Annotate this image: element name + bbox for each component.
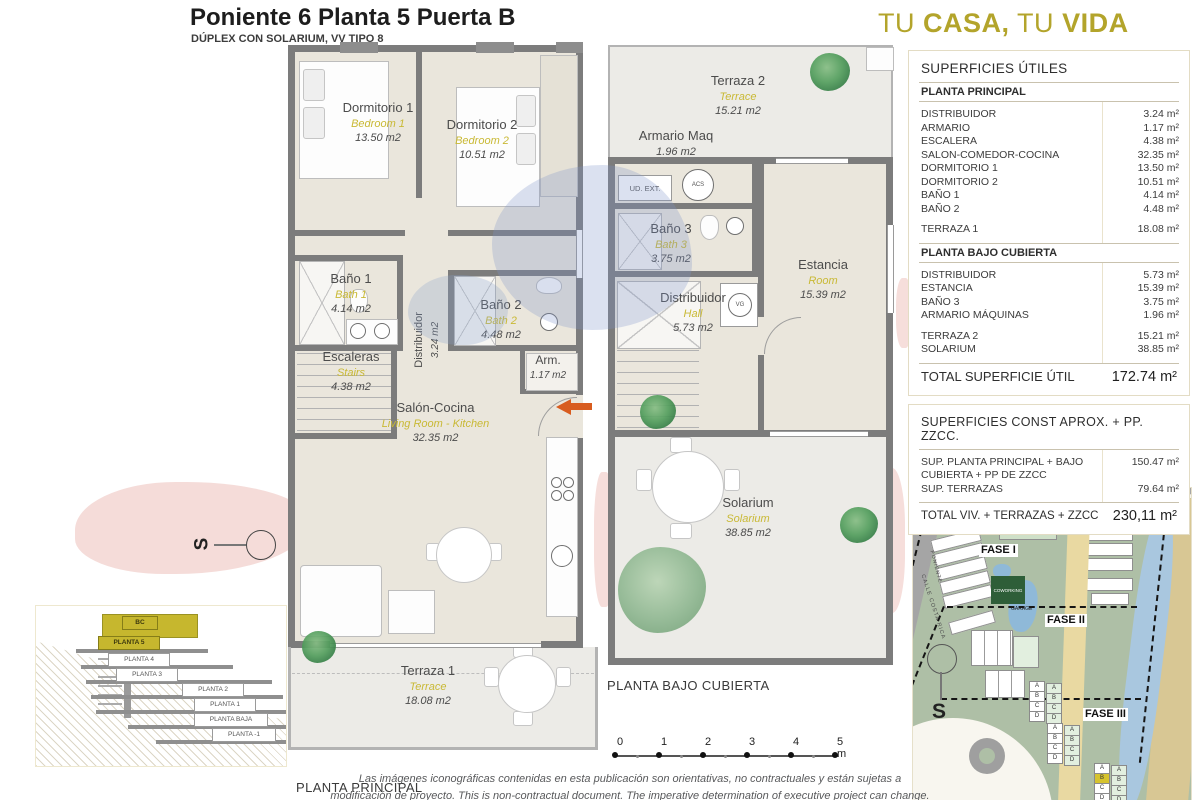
row-value: 32.35 m² xyxy=(1107,149,1179,163)
room-name-en: Bedroom 2 xyxy=(426,134,538,148)
closet xyxy=(540,55,578,197)
room-area: 4.14 m2 xyxy=(306,302,396,316)
unit-cell: D xyxy=(1111,795,1127,800)
wall-pier xyxy=(476,42,514,53)
map-building xyxy=(1085,578,1133,591)
fase1-label: FASE I xyxy=(979,544,1018,557)
row-value: 1.96 m² xyxy=(1107,309,1179,323)
table-row: BAÑO 33.75 m² xyxy=(921,296,1179,310)
row-label: DORMITORIO 1 xyxy=(921,162,1107,176)
room-area: 4.48 m2 xyxy=(456,328,546,342)
room-name: Arm. xyxy=(516,353,580,369)
unit-cell: D xyxy=(1029,711,1045,722)
row-value: 5.73 m² xyxy=(1107,269,1179,283)
room-label-bano3: Baño 3 Bath 3 3.75 m2 xyxy=(626,221,716,266)
utiles-sec1-rows: DISTRIBUIDOR3.24 m²ARMARIO1.17 m²ESCALER… xyxy=(919,102,1179,243)
scale-tick-dot xyxy=(700,752,706,758)
sofa xyxy=(300,565,382,637)
room-label-dormitorio2: Dormitorio 2 Bedroom 2 10.51 m2 xyxy=(426,117,538,162)
row-label: DORMITORIO 2 xyxy=(921,176,1107,190)
wall xyxy=(615,271,758,277)
row-label: SOLARIUM xyxy=(921,343,1107,357)
room-name-en: Terrace xyxy=(373,680,483,694)
row-value: 150.47 m² xyxy=(1107,456,1179,470)
room-area: 38.85 m2 xyxy=(688,526,808,540)
unit-grid: ABCD xyxy=(1094,764,1110,800)
room-name: Dormitorio 2 xyxy=(426,117,538,134)
utiles-sec2-header: PLANTA BAJO CUBIERTA xyxy=(919,243,1179,263)
compass-letter: S xyxy=(932,700,946,724)
row-label: BAÑO 3 xyxy=(921,296,1107,310)
sink xyxy=(726,217,744,235)
total-label: TOTAL VIV. + TERRAZAS + ZZCC xyxy=(921,510,1113,522)
row-value: 1.17 m² xyxy=(1107,122,1179,136)
floor-label-bc: BC xyxy=(122,616,158,630)
disclaimer-line-2: modificación de proyecto. This is non-co… xyxy=(300,788,960,800)
room-area: 32.35 m2 xyxy=(343,431,528,445)
row-value: 79.64 m² xyxy=(1107,483,1179,497)
room-name: Armario Maq xyxy=(616,128,736,145)
kitchen-sink xyxy=(551,545,573,567)
scale-minor-tick xyxy=(812,755,815,758)
scale-tick-label: 0 xyxy=(617,736,623,748)
unit-cell: D xyxy=(1047,753,1063,764)
room-label-salon: Salón-Cocina Living Room - Kitchen 32.35… xyxy=(343,400,528,445)
room-label-bano2: Baño 2 Bath 2 4.48 m2 xyxy=(456,297,546,342)
floor-label-planta5: PLANTA 5 xyxy=(98,636,160,650)
row-value: 4.48 m² xyxy=(1107,203,1179,217)
room-name: Distribuidor xyxy=(413,312,425,368)
sink xyxy=(374,323,390,339)
acs-unit: ACS xyxy=(682,169,714,201)
scale-tick-label: 5 m xyxy=(837,736,854,760)
row-value: 38.85 m² xyxy=(1107,343,1179,357)
terrace-wall xyxy=(608,45,893,47)
map-building-grid xyxy=(1013,636,1039,668)
room-label-arm: Arm. 1.17 m2 xyxy=(516,353,580,382)
table-row: SUP. PLANTA PRINCIPAL + BAJO CUBIERTA + … xyxy=(921,456,1179,483)
room-area: 15.39 m2 xyxy=(768,288,878,302)
table-row: TERRAZA 215.21 m² xyxy=(921,330,1179,344)
row-value: 18.08 m² xyxy=(1107,223,1179,237)
room-name: Distribuidor xyxy=(638,290,748,307)
map-building-grid xyxy=(971,630,1013,666)
room-name-en: Solarium xyxy=(688,512,808,526)
room-label-escaleras: Escaleras Stairs 4.38 m2 xyxy=(306,349,396,394)
room-label-terraza2: Terraza 2 Terrace 15.21 m2 xyxy=(673,73,803,118)
room-name-en: Room xyxy=(768,274,878,288)
terrace-wall xyxy=(288,747,598,750)
brand-slogan: TU CASA, TU VIDA xyxy=(878,8,1129,39)
unit-cell: D xyxy=(1094,793,1110,800)
room-area: 10.51 m2 xyxy=(426,148,538,162)
hob-burner xyxy=(551,490,562,501)
unit-grid: ABCD xyxy=(1047,724,1063,764)
chair xyxy=(636,469,652,491)
scale-tick-dot xyxy=(612,752,618,758)
room-area: 3.24 m2 xyxy=(429,275,442,405)
room-area: 4.38 m2 xyxy=(306,380,396,394)
utiles-sec1-header: PLANTA PRINCIPAL xyxy=(919,82,1179,102)
superficies-utiles-box: SUPERFICIES ÚTILES PLANTA PRINCIPAL DIST… xyxy=(908,50,1190,396)
total-value: 230,11 m² xyxy=(1113,508,1177,524)
table-row: DORMITORIO 113.50 m² xyxy=(921,162,1179,176)
room-name-en: Bedroom 1 xyxy=(318,117,438,131)
floorplan-bajo-cubierta: UD. EXT. ACS VG Terraza 2 Terrace 15.21 … xyxy=(608,45,893,667)
table-row: BAÑO 14.14 m² xyxy=(921,189,1179,203)
room-name: Baño 2 xyxy=(456,297,546,314)
brand-part-1: TU xyxy=(878,8,915,38)
wall xyxy=(541,641,583,648)
row-label: ESTANCIA xyxy=(921,282,1107,296)
room-label-estancia: Estancia Room 15.39 m2 xyxy=(768,257,878,302)
window xyxy=(776,158,848,164)
chair xyxy=(484,667,499,687)
kitchen-counter xyxy=(546,437,578,617)
scale-tick-label: 1 xyxy=(661,736,667,748)
table-row: SALON-COMEDOR-COCINA32.35 m² xyxy=(921,149,1179,163)
disclaimer-line-1: Las imágenes iconográficas contenidas en… xyxy=(300,771,960,788)
plan-bajo-caption: PLANTA BAJO CUBIERTA xyxy=(607,678,770,693)
wall xyxy=(615,203,755,209)
room-name: Solarium xyxy=(688,495,808,512)
terrace-table xyxy=(498,655,556,713)
row-label: SUP. TERRAZAS xyxy=(921,483,1107,497)
map-building-grid xyxy=(985,670,1025,698)
unit-grid: ABCD xyxy=(1064,726,1080,766)
room-name: Salón-Cocina xyxy=(343,400,528,417)
scale-tick-dot xyxy=(744,752,750,758)
scale-tick-dot xyxy=(832,752,838,758)
unit-grid: ABCD xyxy=(1111,766,1127,800)
room-name-en: Terrace xyxy=(673,90,803,104)
table-row: ESCALERA4.38 m² xyxy=(921,135,1179,149)
rooftop-box xyxy=(866,47,894,71)
wall xyxy=(295,230,405,236)
table-row: ESTANCIA15.39 m² xyxy=(921,282,1179,296)
map-building xyxy=(1085,558,1133,571)
floor-label-planta-menos1: PLANTA -1 xyxy=(212,728,276,742)
building-section-diagram: BC PLANTA 5 PLANTA 4 PLANTA 3 PLANTA 2 P… xyxy=(35,605,287,767)
utiles-sec2-rows: DISTRIBUIDOR5.73 m²ESTANCIA15.39 m²BAÑO … xyxy=(919,263,1179,363)
const-total-row: TOTAL VIV. + TERRAZAS + ZZCC 230,11 m² xyxy=(919,502,1179,526)
room-name-en: Hall xyxy=(638,307,748,321)
row-label: DISTRIBUIDOR xyxy=(921,269,1107,283)
floor-label-planta2: PLANTA 2 xyxy=(182,683,244,697)
room-label-solarium: Solarium Solarium 38.85 m2 xyxy=(688,495,808,540)
map-garage-label: GARAGE xyxy=(1011,606,1032,612)
surface-panel: SUPERFICIES ÚTILES PLANTA PRINCIPAL DIST… xyxy=(908,50,1190,543)
row-label: ARMARIO MÁQUINAS xyxy=(921,309,1107,323)
room-area: 5.73 m2 xyxy=(638,321,748,335)
unit-grid: ABCD xyxy=(1046,684,1062,724)
coffee-table xyxy=(388,590,435,634)
ud-ext-box: UD. EXT. xyxy=(618,175,672,201)
room-area: 15.21 m2 xyxy=(673,104,803,118)
table-row: SUP. TERRAZAS79.64 m² xyxy=(921,483,1179,497)
scale-bar: 012345 m xyxy=(614,732,854,766)
utiles-title: SUPERFICIES ÚTILES xyxy=(919,57,1179,82)
const-rows: SUP. PLANTA PRINCIPAL + BAJO CUBIERTA + … xyxy=(919,449,1179,503)
wall xyxy=(448,230,576,236)
hob-burner xyxy=(551,477,562,488)
room-name-en: Bath 1 xyxy=(306,288,396,302)
room-label-armario-maq: Armario Maq 1.96 m2 xyxy=(616,128,736,159)
table-row: DISTRIBUIDOR3.24 m² xyxy=(921,108,1179,122)
room-name-en: Bath 3 xyxy=(626,238,716,252)
wall-pier xyxy=(556,42,583,53)
entry-arrow-bar xyxy=(570,403,592,410)
row-value: 4.38 m² xyxy=(1107,135,1179,149)
row-value: 4.14 m² xyxy=(1107,189,1179,203)
compass-letter: S xyxy=(191,538,213,551)
row-value: 3.75 m² xyxy=(1107,296,1179,310)
compass-ring xyxy=(927,644,957,674)
row-label: BAÑO 1 xyxy=(921,189,1107,203)
total-label: TOTAL SUPERFICIE ÚTIL xyxy=(921,369,1112,384)
room-area: 1.17 m2 xyxy=(516,369,580,382)
bed-pillow xyxy=(303,69,325,101)
scale-minor-tick xyxy=(724,755,727,758)
row-value: 13.50 m² xyxy=(1107,162,1179,176)
scale-tick-label: 3 xyxy=(749,736,755,748)
wall xyxy=(758,157,764,317)
room-name-en: Bath 2 xyxy=(456,314,546,328)
terrace-wall xyxy=(288,647,291,750)
room-name-en: Stairs xyxy=(306,366,396,380)
table-row: DISTRIBUIDOR5.73 m² xyxy=(921,269,1179,283)
row-value: 10.51 m² xyxy=(1107,176,1179,190)
row-value: 3.24 m² xyxy=(1107,108,1179,122)
room-name-en: Living Room - Kitchen xyxy=(343,417,528,431)
wall xyxy=(608,658,893,665)
compass-south: S xyxy=(196,525,276,565)
table-row: TERRAZA 118.08 m² xyxy=(921,223,1179,237)
room-name: Terraza 2 xyxy=(673,73,803,90)
row-label: ARMARIO xyxy=(921,122,1107,136)
floorplan-principal: Dormitorio 1 Bedroom 1 13.50 m2 Dormitor… xyxy=(288,45,600,761)
scale-minor-tick xyxy=(680,755,683,758)
toilet xyxy=(536,277,562,294)
room-name: Dormitorio 1 xyxy=(318,100,438,117)
chair xyxy=(556,667,571,687)
floor-label-planta-baja: PLANTA BAJA xyxy=(194,713,268,727)
section-slab xyxy=(86,680,272,684)
unit-cell: D xyxy=(1064,755,1080,766)
scale-tick-dot xyxy=(656,752,662,758)
window xyxy=(887,225,894,313)
wall xyxy=(608,437,615,665)
const-title: SUPERFICIES CONST APROX. + PP. ZZCC. xyxy=(919,411,1179,449)
chair xyxy=(724,469,740,491)
wall xyxy=(608,157,615,437)
window xyxy=(770,431,868,437)
map-building xyxy=(1091,593,1129,605)
brand-part-4: VIDA xyxy=(1062,8,1129,38)
hob-burner xyxy=(563,490,574,501)
room-label-dormitorio1: Dormitorio 1 Bedroom 1 13.50 m2 xyxy=(318,100,438,145)
row-value: 15.21 m² xyxy=(1107,330,1179,344)
table-row: SOLARIUM38.85 m² xyxy=(921,343,1179,357)
room-area: 18.08 m2 xyxy=(373,694,483,708)
table-row: DORMITORIO 210.51 m² xyxy=(921,176,1179,190)
room-label-terraza1: Terraza 1 Terrace 18.08 m2 xyxy=(373,663,483,708)
wall xyxy=(288,45,583,52)
table-row: ARMARIO MÁQUINAS1.96 m² xyxy=(921,309,1179,323)
room-name: Baño 3 xyxy=(626,221,716,238)
row-label: SUP. PLANTA PRINCIPAL + BAJO CUBIERTA + … xyxy=(921,456,1107,483)
room-name: Baño 1 xyxy=(306,271,396,288)
room-name: Estancia xyxy=(768,257,878,274)
map-building xyxy=(1085,543,1133,556)
room-area: 3.75 m2 xyxy=(626,252,716,266)
chair xyxy=(513,711,533,726)
wall xyxy=(886,437,893,665)
terrace-glazing xyxy=(330,643,541,648)
row-label: TERRAZA 1 xyxy=(921,223,1107,237)
brochure-page: Poniente 6 Planta 5 Puerta B DÚPLEX CON … xyxy=(0,0,1200,800)
dining-table xyxy=(436,527,492,583)
unit-grid: ABCD xyxy=(1029,682,1045,722)
wall xyxy=(288,45,295,647)
scale-minor-tick xyxy=(636,755,639,758)
row-value: 15.39 m² xyxy=(1107,282,1179,296)
compass-line xyxy=(940,672,942,700)
floor-label-planta1: PLANTA 1 xyxy=(194,698,256,712)
brand-part-2: CASA, xyxy=(923,8,1010,38)
room-name: Escaleras xyxy=(306,349,396,366)
row-label: BAÑO 2 xyxy=(921,203,1107,217)
room-name: Terraza 1 xyxy=(373,663,483,680)
scale-tick-dot xyxy=(788,752,794,758)
map-roundabout-center xyxy=(979,748,995,764)
window xyxy=(576,230,583,278)
legal-disclaimer: Las imágenes iconográficas contenidas en… xyxy=(300,771,960,800)
fase3-label: FASE III xyxy=(1083,708,1128,721)
wall xyxy=(758,355,764,437)
room-label-distribuidor2: Distribuidor Hall 5.73 m2 xyxy=(638,290,748,335)
sink xyxy=(350,323,366,339)
brand-part-3: TU xyxy=(1017,8,1054,38)
utiles-total-row: TOTAL SUPERFICIE ÚTIL 172.74 m² xyxy=(919,363,1179,387)
row-label: SALON-COMEDOR-COCINA xyxy=(921,149,1107,163)
table-row: BAÑO 24.48 m² xyxy=(921,203,1179,217)
terrace-wall xyxy=(608,45,610,157)
superficies-const-box: SUPERFICIES CONST APROX. + PP. ZZCC. SUP… xyxy=(908,404,1190,536)
entry-arrow-icon xyxy=(556,399,571,415)
hob-burner xyxy=(563,477,574,488)
fase2-label: FASE II xyxy=(1045,614,1087,627)
floor-label-planta3: PLANTA 3 xyxy=(116,668,178,682)
phase-boundary xyxy=(947,606,1137,608)
row-label: ESCALERA xyxy=(921,135,1107,149)
map-coworking-block: COWORKING xyxy=(991,576,1025,604)
total-value: 172.74 m² xyxy=(1112,369,1177,385)
scale-line xyxy=(616,755,838,757)
scale-tick-label: 4 xyxy=(793,736,799,748)
room-label-distribuidor: Distribuidor 3.24 m2 xyxy=(408,275,442,405)
page-title: Poniente 6 Planta 5 Puerta B xyxy=(190,4,515,32)
terrace-wall xyxy=(595,647,598,750)
page-subtitle: DÚPLEX CON SOLARIUM, VV TIPO 8 xyxy=(191,33,384,45)
room-area: 13.50 m2 xyxy=(318,131,438,145)
floor-label-planta4: PLANTA 4 xyxy=(108,653,170,667)
compass-ring xyxy=(246,530,276,560)
scale-tick-label: 2 xyxy=(705,736,711,748)
row-label: DISTRIBUIDOR xyxy=(921,108,1107,122)
map-compass-south: S xyxy=(923,644,963,734)
row-label: TERRAZA 2 xyxy=(921,330,1107,344)
room-label-bano1: Baño 1 Bath 1 4.14 m2 xyxy=(306,271,396,316)
room-area: 1.96 m2 xyxy=(616,145,736,159)
table-row: ARMARIO1.17 m² xyxy=(921,122,1179,136)
compass-line xyxy=(214,544,246,546)
scale-minor-tick xyxy=(768,755,771,758)
